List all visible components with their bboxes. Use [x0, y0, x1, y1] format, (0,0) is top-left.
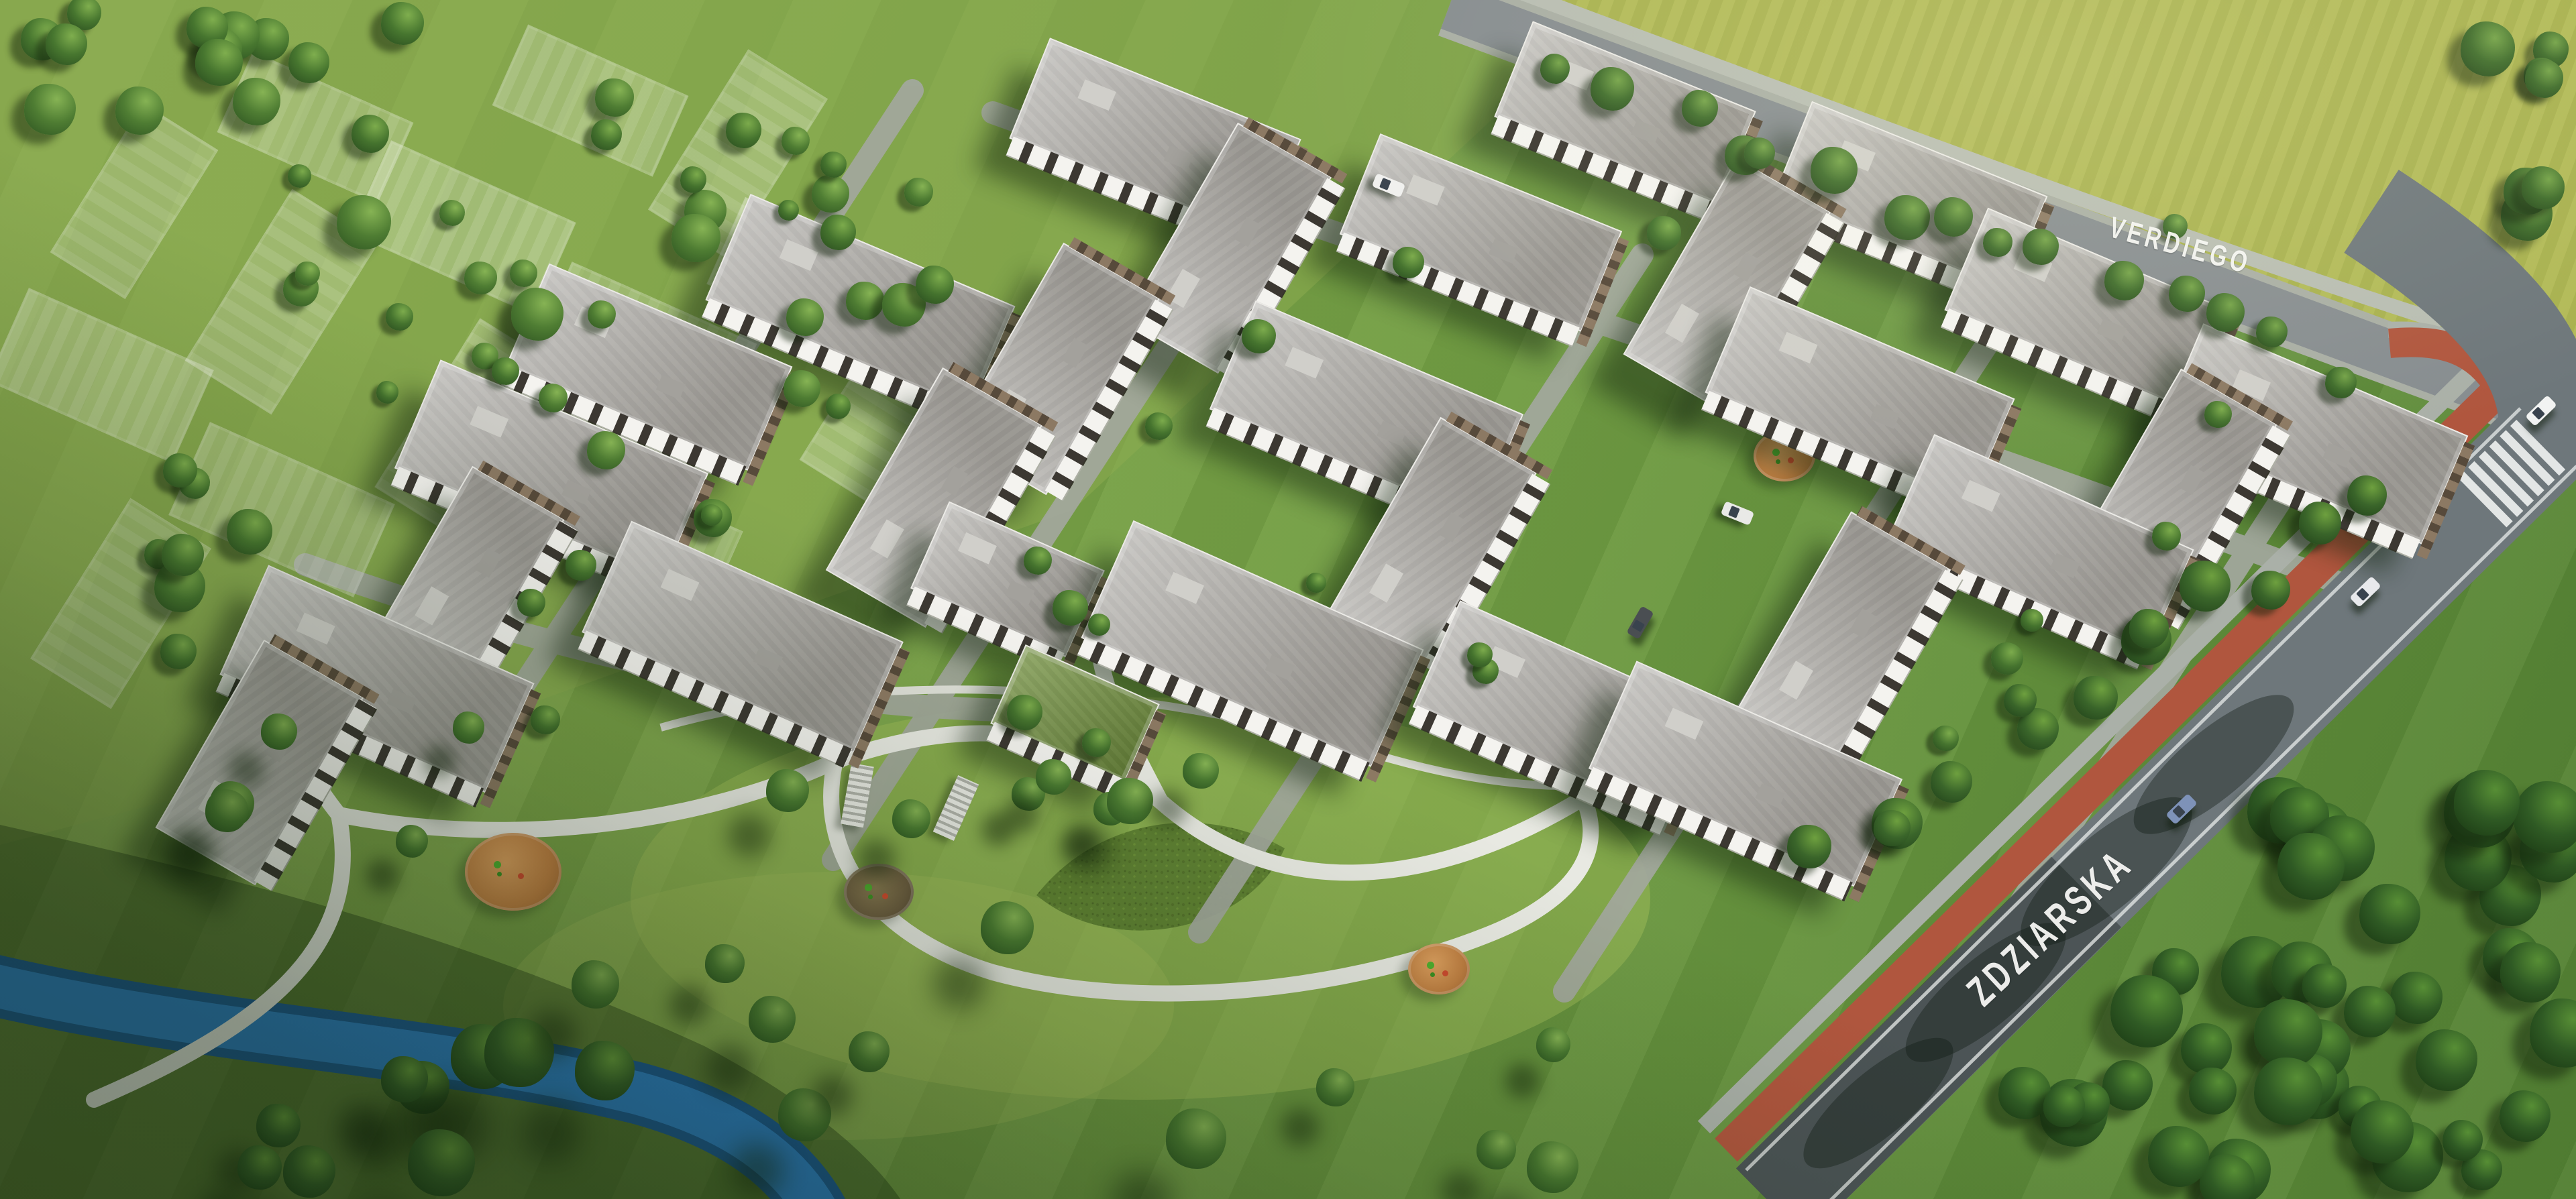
terrain-layer — [0, 0, 2576, 1199]
road-zdziarska — [1704, 211, 2576, 1199]
zdz-sidewalk — [1704, 365, 2478, 1127]
aerial-estate-render: ZDZIARSKA VERDIEGO — [0, 0, 2576, 1199]
shrub-patch-2 — [235, 664, 396, 738]
